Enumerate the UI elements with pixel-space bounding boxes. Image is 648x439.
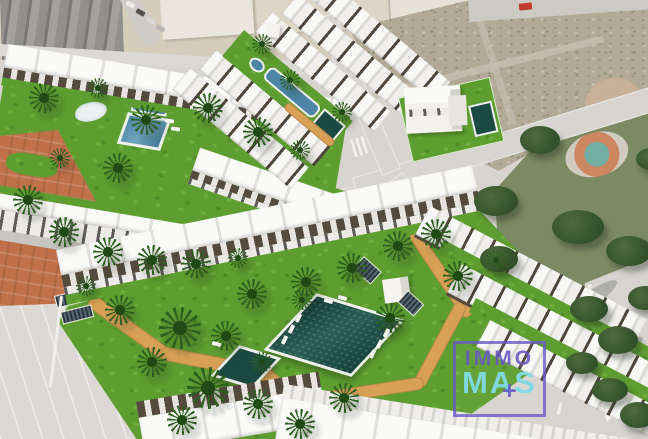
red-van [519,2,533,10]
palm-tree [375,303,405,333]
palm-tree [193,93,223,123]
palm-tree [76,276,96,296]
palm-tree [243,389,273,419]
immo-mas-watermark: IMMO MAS + [453,341,546,417]
palm-tree [187,367,229,409]
palm-tree [329,383,359,413]
palm-tree [137,347,167,377]
tree [566,352,598,374]
palm-tree [88,78,108,98]
palm-tree [280,70,300,90]
palm-tree [421,219,451,249]
tree [606,236,648,266]
palm-tree [285,409,315,439]
palm-tree [290,140,310,160]
palm-tree [292,290,312,310]
tree [474,186,518,216]
palm-tree [237,279,267,309]
palm-tree [181,249,211,279]
palm-tree [211,321,241,351]
palm-tree [383,231,413,261]
aerial-render: IMMO MAS + [0,0,648,439]
palm-tree [159,307,201,349]
palm-tree [29,83,59,113]
villa-windows [409,107,453,116]
villa-wing [448,95,468,126]
palm-tree [252,34,272,54]
tree [592,378,628,402]
palm-tree [337,253,367,283]
palm-tree [50,148,70,168]
palm-tree [137,245,167,275]
palm-tree [332,102,352,122]
tree [552,210,604,244]
palm-tree [252,352,272,372]
palm-tree [49,217,79,247]
palm-tree [228,248,248,268]
tree [570,296,608,322]
tree [620,402,648,428]
palm-tree [167,405,197,435]
palm-tree [13,185,43,215]
palm-tree [93,237,123,267]
palm-tree [486,250,506,270]
palm-tree [131,105,161,135]
palm-tree [105,295,135,325]
watermark-plus-icon: + [502,377,517,406]
palm-tree [443,261,473,291]
tree [598,326,638,354]
palm-tree [103,153,133,183]
tree [520,126,560,154]
palm-tree [243,117,273,147]
watermark-line2: MAS [456,367,543,399]
